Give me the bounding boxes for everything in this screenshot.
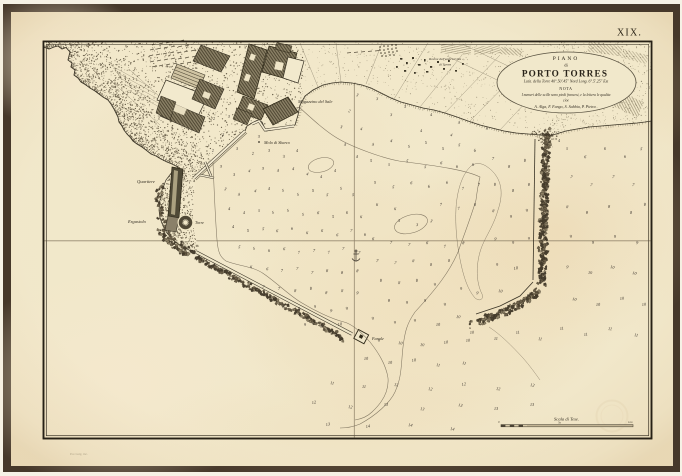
svg-text:di Torres: di Torres bbox=[439, 63, 452, 67]
svg-text:Quartiere: Quartiere bbox=[137, 179, 155, 184]
svg-text:Magazzino del Sale: Magazzino del Sale bbox=[297, 99, 332, 104]
svg-text:Torre: Torre bbox=[195, 220, 204, 225]
svg-text:XIX.: XIX. bbox=[617, 28, 642, 39]
svg-text:Molo di Sbarco: Molo di Sbarco bbox=[263, 140, 290, 145]
svg-text:Ergastolo: Ergastolo bbox=[127, 219, 147, 224]
svg-text:P.re Luig. inc.: P.re Luig. inc. bbox=[70, 452, 88, 456]
svg-text:Rovine dell'antica Citta: Rovine dell'antica Citta bbox=[428, 57, 461, 61]
